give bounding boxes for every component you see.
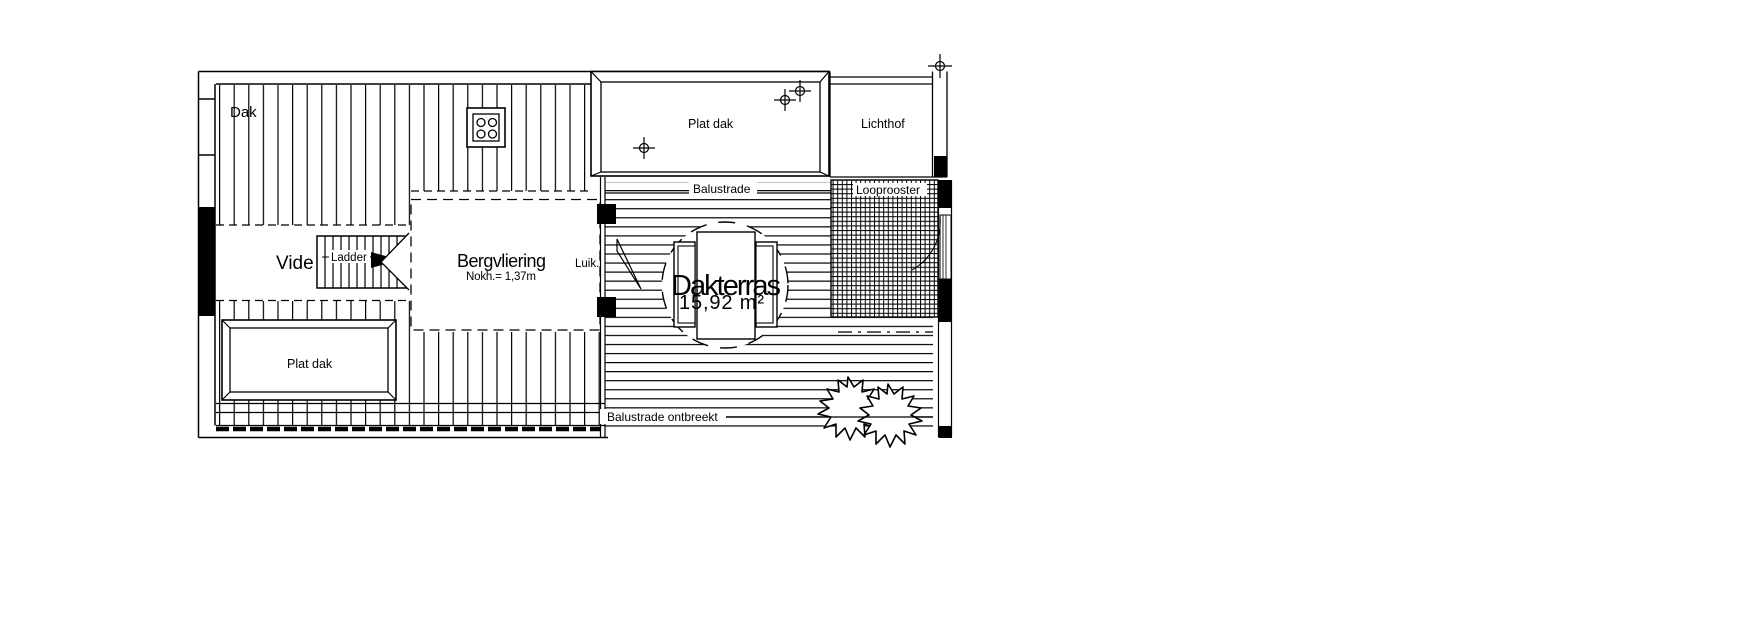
svg-text:Bergvliering: Bergvliering [457, 251, 546, 271]
svg-text:15,92 m²: 15,92 m² [679, 292, 764, 314]
svg-text:Plat dak: Plat dak [688, 117, 734, 131]
svg-text:Vide: Vide [276, 253, 314, 274]
svg-text:Balustrade: Balustrade [693, 182, 751, 196]
svg-text:Luik.: Luik. [575, 258, 599, 270]
svg-text:Looprooster: Looprooster [856, 183, 920, 197]
svg-text:Lichthof: Lichthof [861, 117, 905, 131]
svg-text:Balustrade ontbreekt: Balustrade ontbreekt [607, 410, 718, 424]
svg-text:Ladder: Ladder [331, 252, 367, 264]
svg-text:Nokh.= 1,37m: Nokh.= 1,37m [466, 271, 536, 283]
svg-text:Dak: Dak [230, 104, 257, 121]
svg-text:Plat dak: Plat dak [287, 357, 333, 371]
